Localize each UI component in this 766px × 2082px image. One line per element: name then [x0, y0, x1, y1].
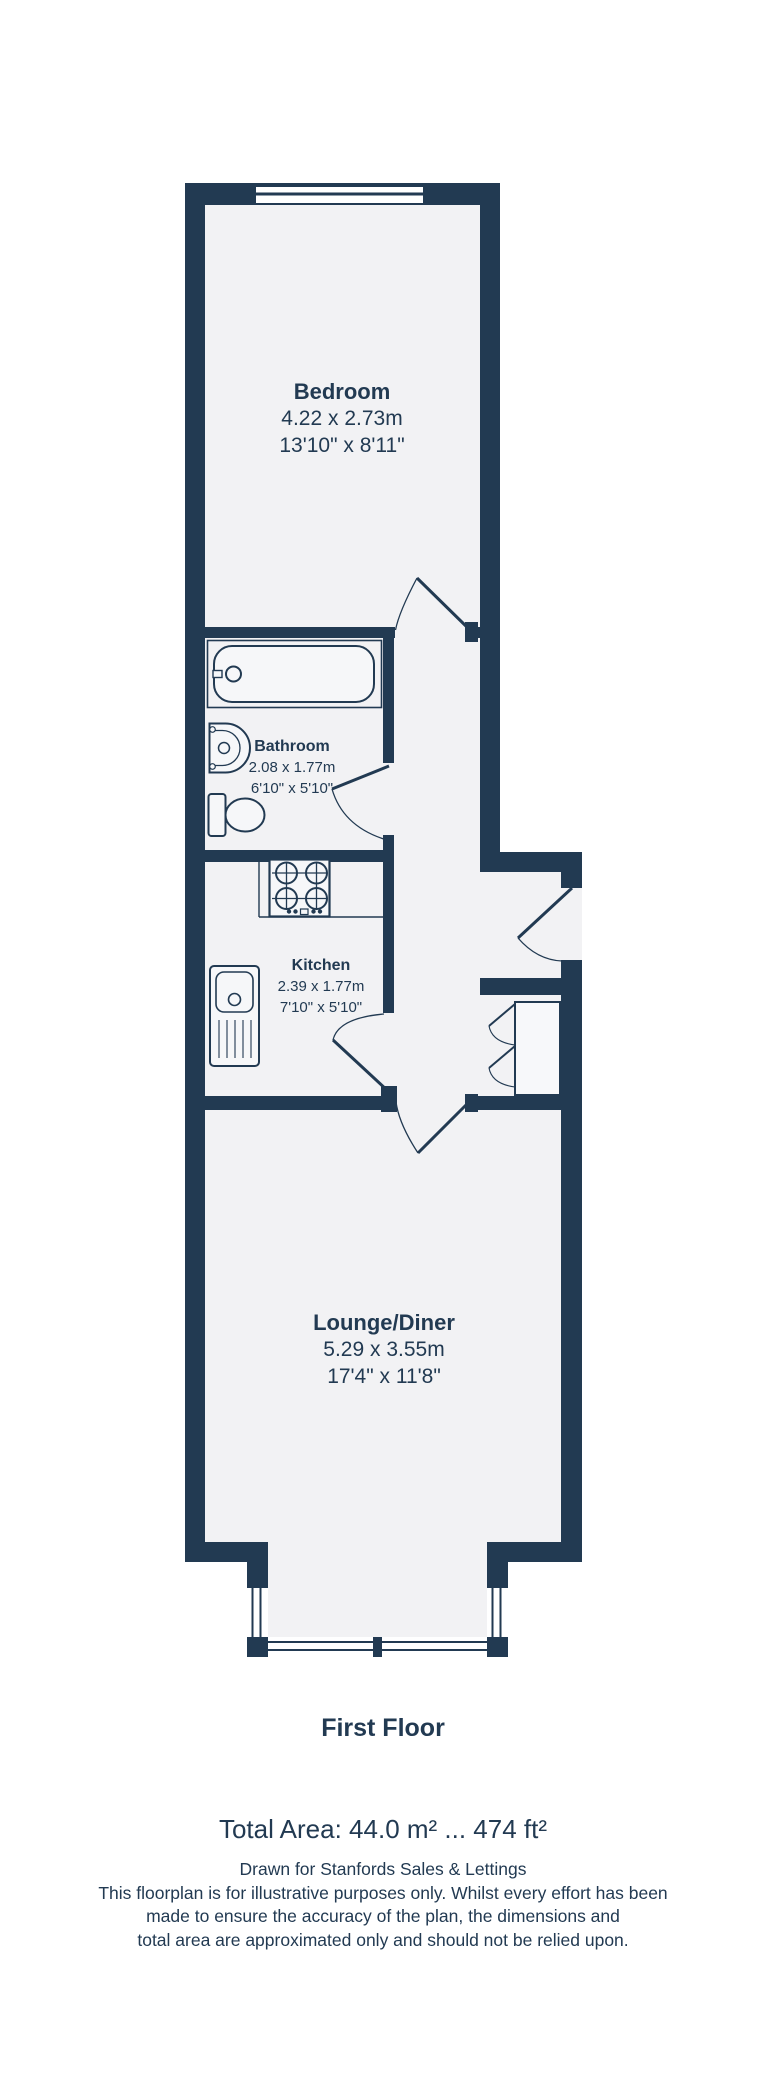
wall-bay-corner-right	[487, 1637, 508, 1657]
disclaimer-credit-line: Drawn for Stanfords Sales & Lettings	[0, 1858, 766, 1882]
kitchen-dimensions-metric: 2.39 x 1.77m	[278, 976, 365, 997]
bathroom-dimensions-metric: 2.08 x 1.77m	[249, 757, 336, 778]
bathtub-tap	[226, 667, 241, 682]
lounge-dimensions-metric: 5.29 x 3.55m	[313, 1336, 455, 1363]
lounge-dimensions-imperial: 17'4" x 11'8"	[313, 1363, 455, 1390]
entry-door-opening	[561, 886, 582, 962]
wall-bay-step-right	[487, 1542, 582, 1562]
toilet-bowl	[226, 799, 265, 832]
lounge-label: Lounge/Diner 5.29 x 3.55m 17'4" x 11'8"	[313, 1309, 455, 1390]
sink-unit	[210, 966, 259, 1066]
wall-kitchen-right	[383, 850, 394, 1013]
disclaimer: Drawn for Stanfords Sales & Lettings Thi…	[0, 1858, 766, 1952]
kitchen-door-opening	[383, 1013, 394, 1096]
bay-floor	[268, 1542, 487, 1637]
hob	[270, 860, 330, 917]
bay-window-mullion	[373, 1637, 382, 1657]
wall-cupboard-top	[480, 978, 582, 995]
wall-lounge-top-right	[473, 1096, 582, 1110]
total-area-text: Total Area: 44.0 m² ... 474 ft²	[0, 1814, 766, 1845]
wall-bathroom-right	[383, 627, 394, 763]
wall-entry-jog	[480, 852, 582, 872]
kitchen-name: Kitchen	[278, 955, 365, 976]
floorplan-drawing	[0, 0, 766, 2082]
basin	[210, 724, 251, 773]
wall-bay-side-left	[247, 1562, 268, 1588]
kitchen-dimensions-imperial: 7'10" x 5'10"	[278, 997, 365, 1018]
toilet	[209, 794, 265, 836]
bathtub	[208, 641, 382, 708]
bathroom-name: Bathroom	[249, 736, 336, 757]
floor-title: First Floor	[0, 1714, 766, 1743]
wall-right-lower	[561, 960, 582, 1562]
hallway-floor	[394, 627, 480, 1096]
basin-drain	[219, 743, 230, 754]
bedroom-name: Bedroom	[279, 378, 404, 405]
lounge-name: Lounge/Diner	[313, 1309, 455, 1336]
window-bay-bottom	[268, 1637, 487, 1657]
toilet-cistern	[209, 794, 226, 836]
bathroom-label: Bathroom 2.08 x 1.77m 6'10" x 5'10"	[249, 736, 336, 799]
bedroom-dimensions-imperial: 13'10" x 8'11"	[279, 432, 404, 459]
floorplan-page: Bedroom 4.22 x 2.73m 13'10" x 8'11" Bath…	[0, 0, 766, 2082]
window-bay-left	[247, 1588, 268, 1637]
wall-lounge-top-left	[185, 1096, 395, 1110]
kitchen-label: Kitchen 2.39 x 1.77m 7'10" x 5'10"	[278, 955, 365, 1018]
wall-right-upper	[480, 183, 500, 852]
wall-bedroom-bottom	[185, 627, 395, 638]
bathroom-door-opening	[383, 763, 394, 840]
wall-bay-side-right	[487, 1562, 508, 1588]
disclaimer-line: made to ensure the accuracy of the plan,…	[0, 1905, 766, 1929]
wall-bay-corner-left	[247, 1637, 268, 1657]
bathroom-dimensions-imperial: 6'10" x 5'10"	[249, 778, 336, 799]
wall-left	[185, 183, 205, 1562]
bathtub-tap-stub	[213, 671, 222, 678]
window-bay-right	[487, 1588, 508, 1637]
disclaimer-line: total area are approximated only and sho…	[0, 1929, 766, 1953]
bedroom-label: Bedroom 4.22 x 2.73m 13'10" x 8'11"	[279, 378, 404, 459]
disclaimer-line: This floorplan is for illustrative purpo…	[0, 1882, 766, 1906]
wall-bay-step-left	[185, 1542, 268, 1562]
bedroom-dimensions-metric: 4.22 x 2.73m	[279, 405, 404, 432]
wall-entry-stub-top	[561, 872, 582, 888]
window-bedroom-top	[256, 185, 423, 203]
